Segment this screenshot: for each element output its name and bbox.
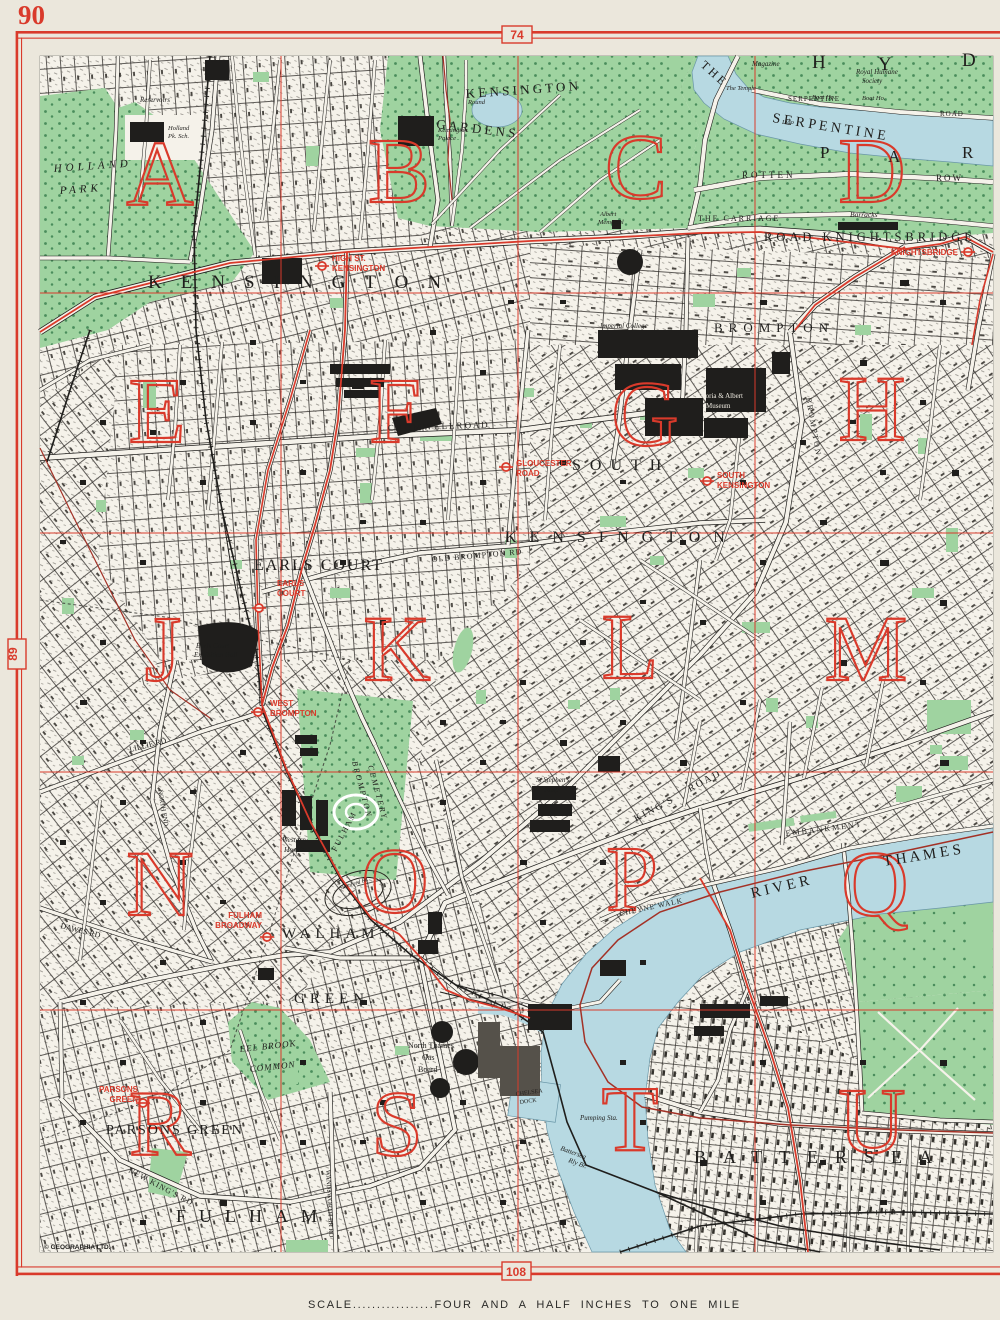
svg-text:Palace: Palace: [437, 135, 456, 142]
svg-text:ROTTEN: ROTTEN: [742, 170, 796, 180]
svg-text:Museum: Museum: [706, 402, 731, 410]
svg-text:O: O: [361, 830, 428, 933]
svg-text:E: E: [129, 360, 186, 463]
svg-text:Boat Ho.: Boat Ho.: [862, 95, 886, 102]
svg-text:ROAD: ROAD: [940, 110, 964, 118]
svg-text:Reservoirs: Reservoirs: [139, 96, 170, 104]
svg-text:BROADWAY: BROADWAY: [215, 921, 262, 930]
svg-text:C: C: [605, 116, 667, 219]
svg-text:FULHAM: FULHAM: [176, 1206, 330, 1226]
svg-text:HIGH ST.: HIGH ST.: [332, 254, 366, 263]
svg-text:H: H: [838, 358, 905, 461]
svg-text:EARLS COURT: EARLS COURT: [254, 557, 384, 574]
svg-text:FULHAM: FULHAM: [228, 911, 262, 920]
svg-text:Q: Q: [841, 833, 908, 936]
svg-text:BROMPTON: BROMPTON: [270, 709, 317, 718]
svg-text:COURT: COURT: [277, 589, 306, 598]
svg-text:L: L: [602, 596, 659, 699]
svg-text:K: K: [363, 598, 430, 701]
svg-text:P: P: [606, 828, 658, 931]
svg-text:74: 74: [510, 28, 524, 42]
svg-text:The Temple: The Temple: [726, 85, 756, 92]
svg-text:ROAD KNIGHTSBRIDGE: ROAD KNIGHTSBRIDGE: [764, 230, 976, 244]
svg-text:ROAD: ROAD: [516, 469, 540, 478]
svg-text:90: 90: [18, 0, 45, 30]
svg-text:Western: Western: [282, 835, 306, 844]
svg-text:G: G: [611, 363, 678, 466]
svg-text:WEST: WEST: [270, 699, 293, 708]
svg-text:D: D: [962, 50, 976, 71]
svg-text:89: 89: [6, 647, 20, 661]
svg-text:Exhibition Hall: Exhibition Hall: [193, 651, 237, 659]
svg-text:M: M: [825, 598, 908, 701]
svg-text:P: P: [820, 143, 829, 162]
svg-text:Hosp: Hosp: [543, 786, 559, 794]
svg-text:KNIGHTSBRIDGE: KNIGHTSBRIDGE: [891, 248, 959, 257]
svg-text:THE CARRIAGE: THE CARRIAGE: [698, 214, 780, 223]
svg-text:Pk. Sch.: Pk. Sch.: [167, 133, 189, 140]
svg-text:Kensington: Kensington: [437, 127, 468, 134]
svg-text:Hospital: Hospital: [283, 845, 310, 854]
svg-text:S: S: [371, 1073, 423, 1176]
svg-text:R: R: [962, 143, 974, 162]
svg-text:ROW: ROW: [936, 173, 963, 183]
svg-text:SOUTH: SOUTH: [572, 457, 670, 474]
svg-text:Barracks: Barracks: [850, 210, 878, 219]
svg-text:B: B: [368, 120, 430, 223]
svg-text:SOUTH: SOUTH: [717, 471, 745, 480]
svg-text:Imperial College: Imperial College: [599, 322, 648, 330]
svg-text:PARSONS GREEN: PARSONS GREEN: [106, 1123, 244, 1138]
svg-text:J: J: [145, 598, 181, 701]
svg-text:N: N: [126, 833, 193, 936]
svg-text:BATTERSEA: BATTERSEA: [694, 1147, 949, 1167]
svg-text:A: A: [888, 147, 901, 166]
svg-text:GREEN.: GREEN.: [294, 991, 378, 1007]
svg-text:WALHAM: WALHAM: [282, 926, 380, 942]
svg-text:KENSINGTON: KENSINGTON: [717, 481, 770, 490]
svg-text:Lido: Lido: [781, 119, 795, 126]
svg-text:SCALE.................FOUR AND: SCALE.................FOUR AND A HALF IN…: [308, 1299, 741, 1311]
svg-text:Magazine: Magazine: [751, 60, 780, 68]
svg-text:Victoria & Albert: Victoria & Albert: [694, 392, 743, 400]
svg-text:BROMPTON: BROMPTON: [714, 320, 834, 335]
svg-text:Holland: Holland: [167, 125, 190, 132]
svg-text:H: H: [812, 52, 826, 73]
svg-text:EARLS: EARLS: [277, 579, 305, 588]
svg-text:Earls Court: Earls Court: [195, 642, 230, 650]
svg-text:Board: Board: [418, 1065, 438, 1074]
svg-text:GLOUCESTER: GLOUCESTER: [516, 459, 572, 468]
svg-text:Memorial: Memorial: [597, 219, 624, 226]
svg-text:Round: Round: [467, 99, 486, 106]
svg-text:North Thames: North Thames: [408, 1041, 454, 1050]
svg-text:Boat Ho.: Boat Ho.: [812, 94, 836, 101]
svg-text:KENSINGTON: KENSINGTON: [148, 272, 460, 293]
svg-text:Gas: Gas: [422, 1053, 434, 1062]
svg-text:108: 108: [506, 1265, 526, 1279]
svg-text:© GEOGRAPHIA LTD.: © GEOGRAPHIA LTD.: [44, 1243, 111, 1251]
svg-text:KENSINGTON: KENSINGTON: [505, 529, 738, 546]
svg-text:Society: Society: [862, 77, 883, 85]
svg-text:F: F: [369, 360, 421, 463]
svg-text:Pumping Sta.: Pumping Sta.: [579, 1114, 618, 1122]
svg-text:St Stephen's: St Stephen's: [536, 776, 570, 784]
svg-text:Royal Humane: Royal Humane: [855, 68, 898, 76]
svg-text:Albert: Albert: [599, 211, 616, 218]
